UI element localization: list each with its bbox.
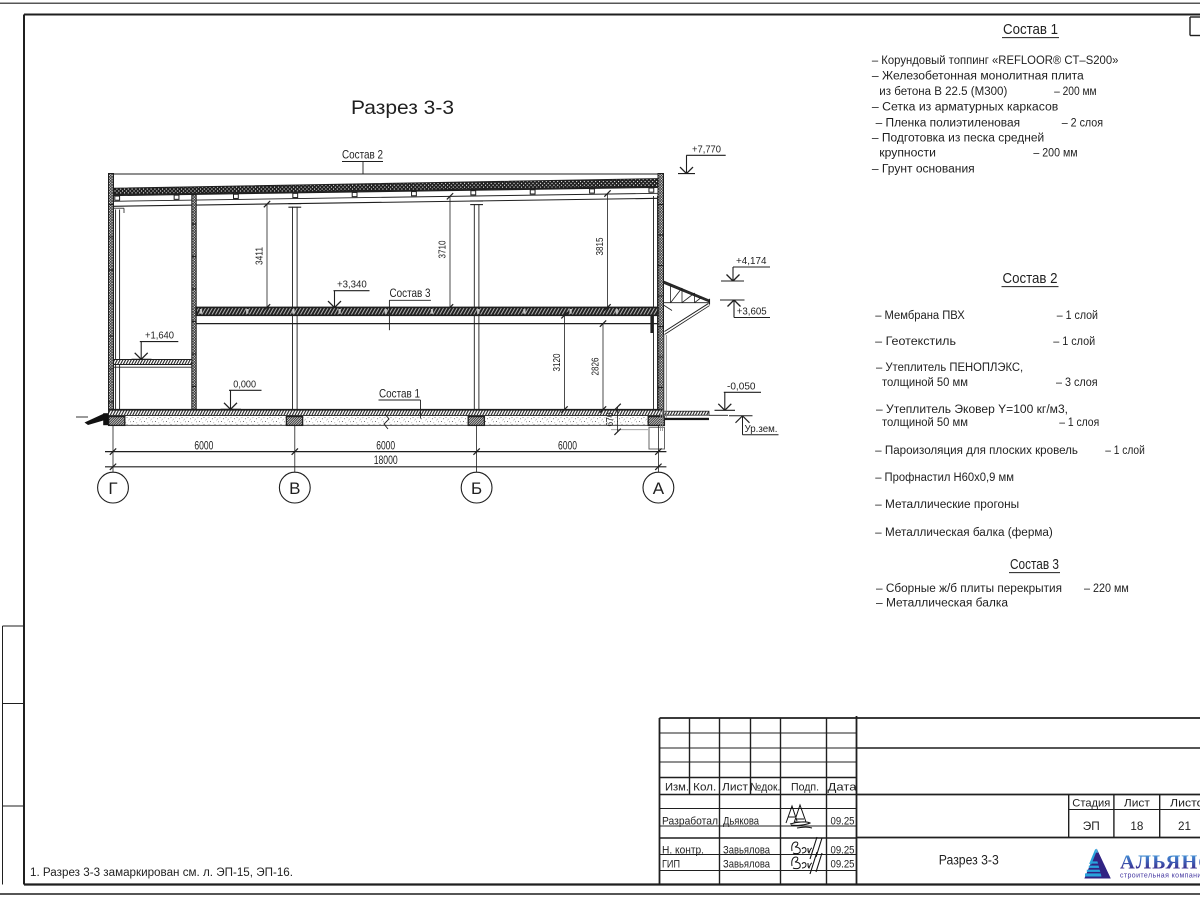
svg-text:09.25: 09.25	[831, 816, 855, 828]
svg-text:из бетона В 22.5 (М300): из бетона В 22.5 (М300)	[879, 86, 1007, 98]
svg-text:– Грунт основания: – Грунт основания	[872, 163, 975, 175]
svg-text:– 3 слоя: – 3 слоя	[1056, 377, 1098, 389]
svg-text:2826: 2826	[589, 357, 601, 375]
svg-text:Состав 1: Состав 1	[1003, 21, 1058, 38]
svg-text:строительная компания: строительная компания	[1120, 873, 1200, 880]
svg-text:– 1 слой: – 1 слой	[1057, 310, 1098, 322]
svg-text:– Профнастил Н60х0,9 мм: – Профнастил Н60х0,9 мм	[875, 472, 1014, 484]
svg-text:– 200 мм: – 200 мм	[1033, 148, 1077, 160]
svg-text:Состав 2: Состав 2	[342, 148, 383, 162]
svg-text:Состав 3: Состав 3	[1010, 556, 1059, 573]
svg-text:ЭП: ЭП	[1083, 819, 1100, 833]
svg-text:– 220 мм: – 220 мм	[1084, 583, 1129, 595]
svg-text:– Железобетонная монолитная п: – Железобетонная монолитная плита	[872, 70, 1085, 82]
svg-text:Дата: Дата	[828, 782, 858, 794]
svg-text:Разработал: Разработал	[662, 816, 718, 828]
svg-text:– Утеплитель Эковер Y=100 кг/м: – Утеплитель Эковер Y=100 кг/м3,	[876, 404, 1068, 416]
svg-text:Лист: Лист	[1124, 798, 1150, 810]
svg-text:– 2 слоя: – 2 слоя	[1062, 118, 1103, 130]
svg-text:– Металлическая балка (ферма): – Металлическая балка (ферма)	[875, 527, 1053, 539]
svg-text:09.25: 09.25	[831, 845, 855, 857]
svg-text:– Металлическая балка: – Металлическая балка	[876, 597, 1009, 609]
svg-text:6000: 6000	[376, 440, 395, 452]
svg-text:– Пленка полиэтиленовая: – Пленка полиэтиленовая	[876, 118, 1021, 130]
svg-text:21: 21	[1178, 819, 1191, 833]
svg-text:18000: 18000	[374, 455, 398, 467]
svg-text:Ур.зем.: Ур.зем.	[745, 423, 778, 435]
svg-text:– Пароизоляция для плоских кро: – Пароизоляция для плоских кровель	[875, 445, 1078, 457]
svg-text:Состав 2: Состав 2	[1003, 270, 1058, 287]
svg-text:Г: Г	[108, 479, 117, 498]
svg-text:3815: 3815	[594, 237, 606, 255]
svg-text:– 1 слой: – 1 слой	[1053, 336, 1095, 348]
svg-text:крупности: крупности	[879, 148, 936, 160]
svg-text:АЛЬЯНС: АЛЬЯНС	[1120, 852, 1200, 874]
svg-text:3411: 3411	[253, 247, 265, 265]
svg-text:Завьялова: Завьялова	[723, 845, 771, 857]
svg-text:Лист: Лист	[722, 782, 748, 794]
svg-text:– Утеплитель ПЕНОПЛЭКС,: – Утеплитель ПЕНОПЛЭКС,	[876, 362, 1023, 374]
svg-text:ГИП: ГИП	[662, 859, 680, 871]
svg-text:Кол.: Кол.	[693, 782, 716, 794]
svg-text:толщиной 50 мм: толщиной 50 мм	[882, 377, 968, 389]
svg-text:– Сборные ж/б плиты перекрытия: – Сборные ж/б плиты перекрытия	[876, 583, 1062, 595]
svg-text:– Мембрана ПВХ: – Мембрана ПВХ	[875, 310, 965, 322]
svg-text:№док.: №док.	[750, 782, 780, 794]
svg-text:– Корундовый топпинг «REFLOOR®: – Корундовый топпинг «REFLOOR® CT–S200»	[872, 55, 1119, 67]
svg-text:+4,174: +4,174	[736, 255, 767, 267]
svg-text:6000: 6000	[194, 440, 213, 452]
svg-text:3710: 3710	[436, 240, 448, 258]
svg-text:– 1 слой: – 1 слой	[1105, 445, 1145, 457]
svg-text:670: 670	[605, 412, 616, 426]
svg-text:Изм.: Изм.	[665, 782, 689, 794]
svg-text:– Металлические прогоны: – Металлические прогоны	[875, 499, 1019, 511]
svg-text:+3,605: +3,605	[737, 306, 767, 318]
svg-text:Разрез 3-3: Разрез 3-3	[939, 853, 999, 868]
svg-text:3120: 3120	[551, 353, 563, 371]
svg-text:А: А	[653, 479, 665, 498]
svg-text:0,000: 0,000	[233, 378, 256, 390]
svg-text:+3,340: +3,340	[337, 279, 367, 291]
svg-text:– Подготовка из песка средней: – Подготовка из песка средней	[872, 133, 1044, 145]
svg-text:1. Разрез 3-3 замаркирован см.: 1. Разрез 3-3 замаркирован см. л. ЭП-15,…	[30, 867, 293, 879]
svg-text:– Геотекстиль: – Геотекстиль	[875, 336, 956, 348]
svg-text:– 200 мм: – 200 мм	[1054, 86, 1097, 98]
svg-text:09.25: 09.25	[831, 859, 855, 871]
svg-text:+1,640: +1,640	[145, 330, 174, 342]
svg-text:6000: 6000	[558, 440, 577, 452]
svg-text:Листов: Листов	[1170, 798, 1200, 810]
svg-text:Дьякова: Дьякова	[723, 816, 760, 828]
svg-text:– Сетка из арматурных каркасов: – Сетка из арматурных каркасов	[872, 102, 1058, 114]
svg-text:толщиной 50 мм: толщиной 50 мм	[882, 417, 968, 429]
svg-text:Завьялова: Завьялова	[723, 859, 771, 871]
svg-text:Подп.: Подп.	[791, 782, 819, 794]
svg-text:+7,770: +7,770	[692, 143, 721, 155]
svg-text:Состав 3: Состав 3	[390, 286, 431, 300]
svg-text:-0,050: -0,050	[727, 380, 756, 392]
svg-text:Разрез 3-3: Разрез 3-3	[351, 97, 454, 119]
svg-text:Н. контр.: Н. контр.	[662, 845, 704, 857]
svg-text:Состав 1: Состав 1	[379, 387, 420, 401]
svg-text:Б: Б	[471, 479, 482, 498]
svg-text:Стадия: Стадия	[1072, 798, 1110, 810]
svg-text:В: В	[289, 479, 300, 498]
svg-text:18: 18	[1130, 819, 1143, 833]
svg-text:– 1 слоя: – 1 слоя	[1059, 417, 1099, 429]
